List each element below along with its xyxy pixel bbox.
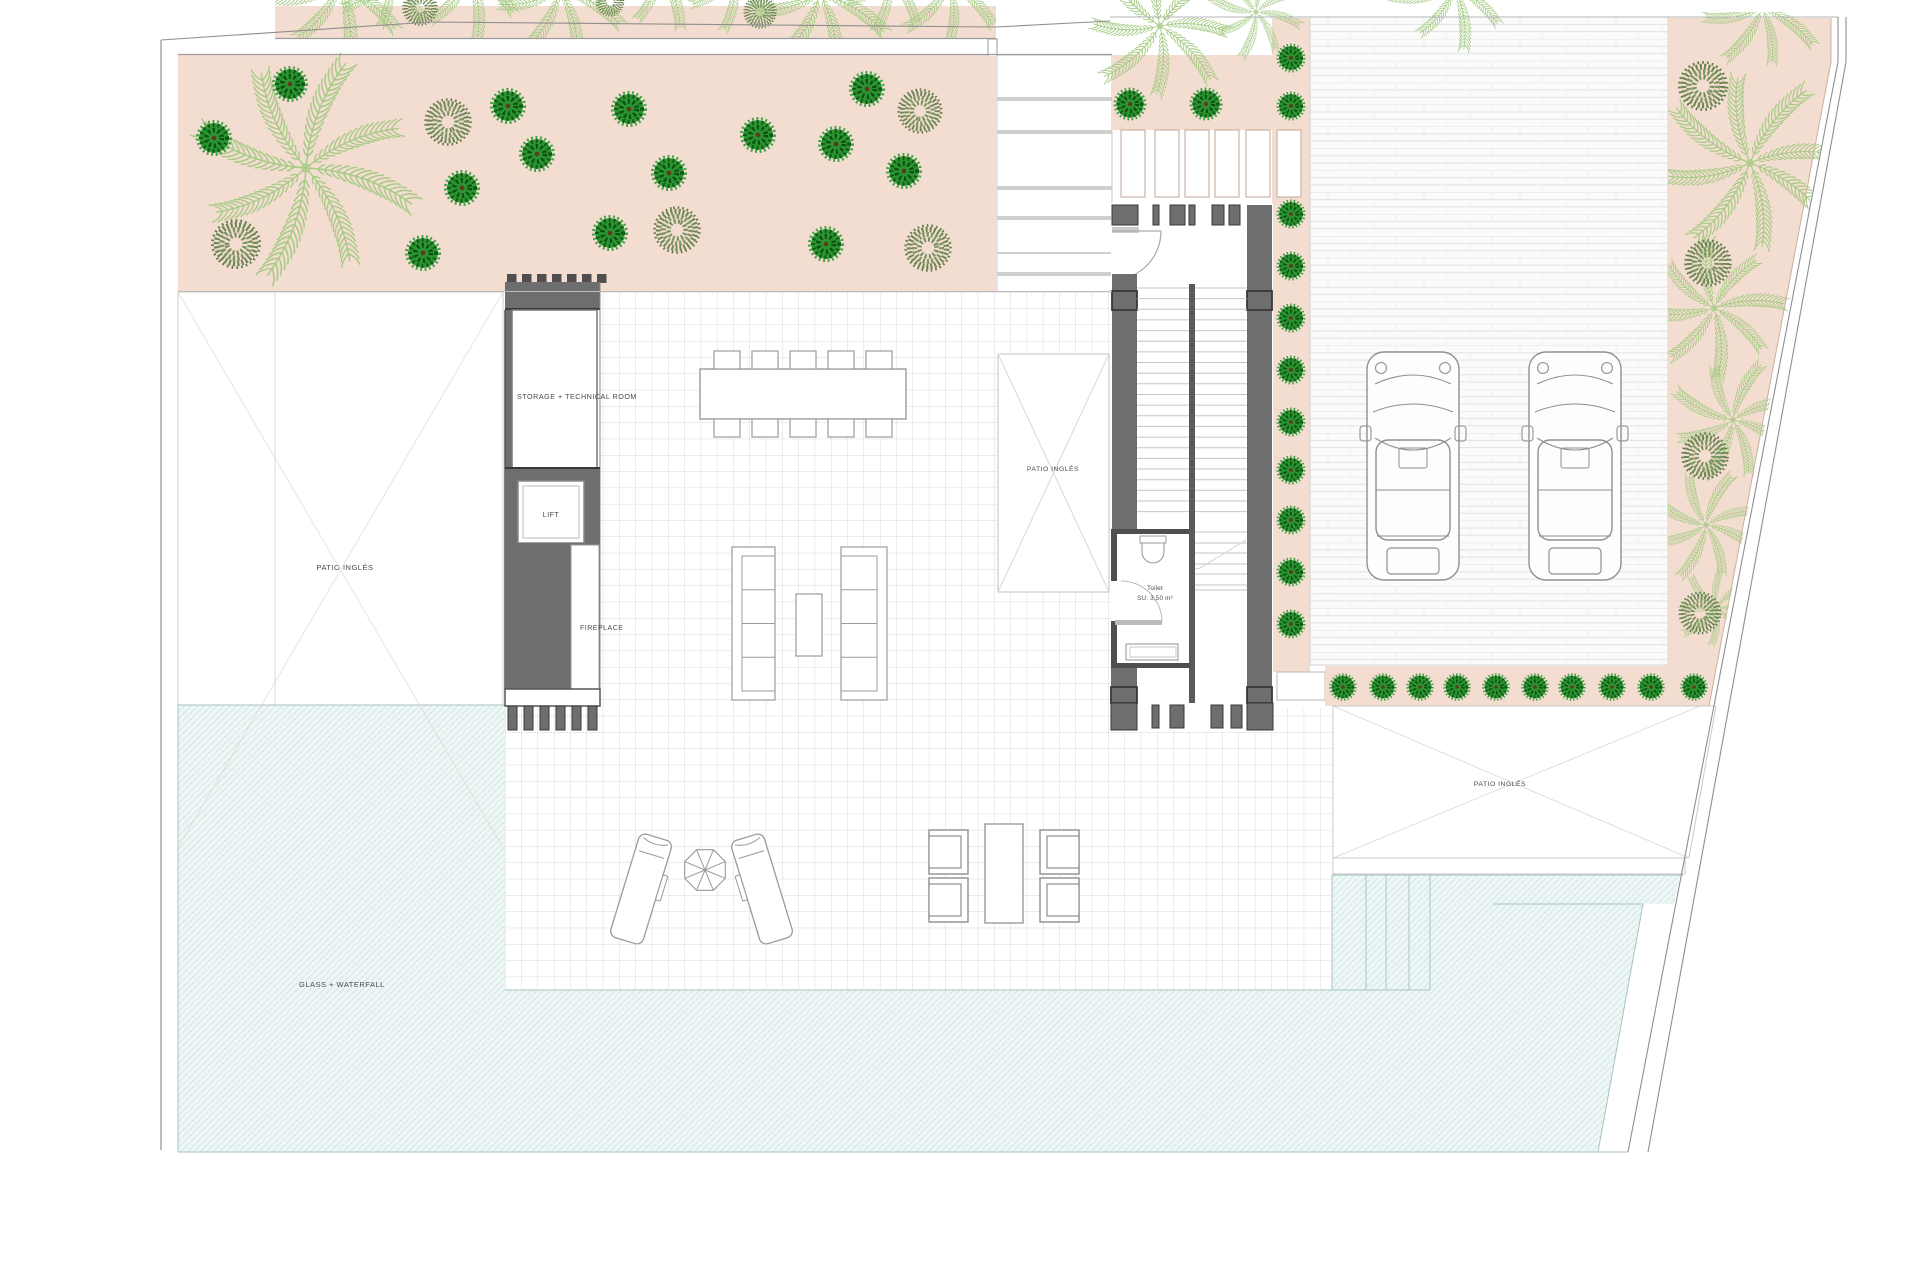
- svg-text:PATIO INGLÉS: PATIO INGLÉS: [1027, 464, 1079, 473]
- svg-text:PATIO INGLÉS: PATIO INGLÉS: [317, 563, 374, 572]
- svg-text:FIREPLACE: FIREPLACE: [580, 625, 623, 632]
- svg-text:SU: 3,50 m²: SU: 3,50 m²: [1137, 595, 1173, 602]
- svg-text:Toilet: Toilet: [1147, 585, 1163, 592]
- svg-text:PATIO INGLÉS: PATIO INGLÉS: [1474, 779, 1526, 788]
- svg-text:GLASS + WATERFALL: GLASS + WATERFALL: [299, 980, 385, 989]
- svg-text:LIFT: LIFT: [543, 512, 560, 519]
- svg-text:STORAGE + TECHNICAL ROOM: STORAGE + TECHNICAL ROOM: [517, 392, 637, 401]
